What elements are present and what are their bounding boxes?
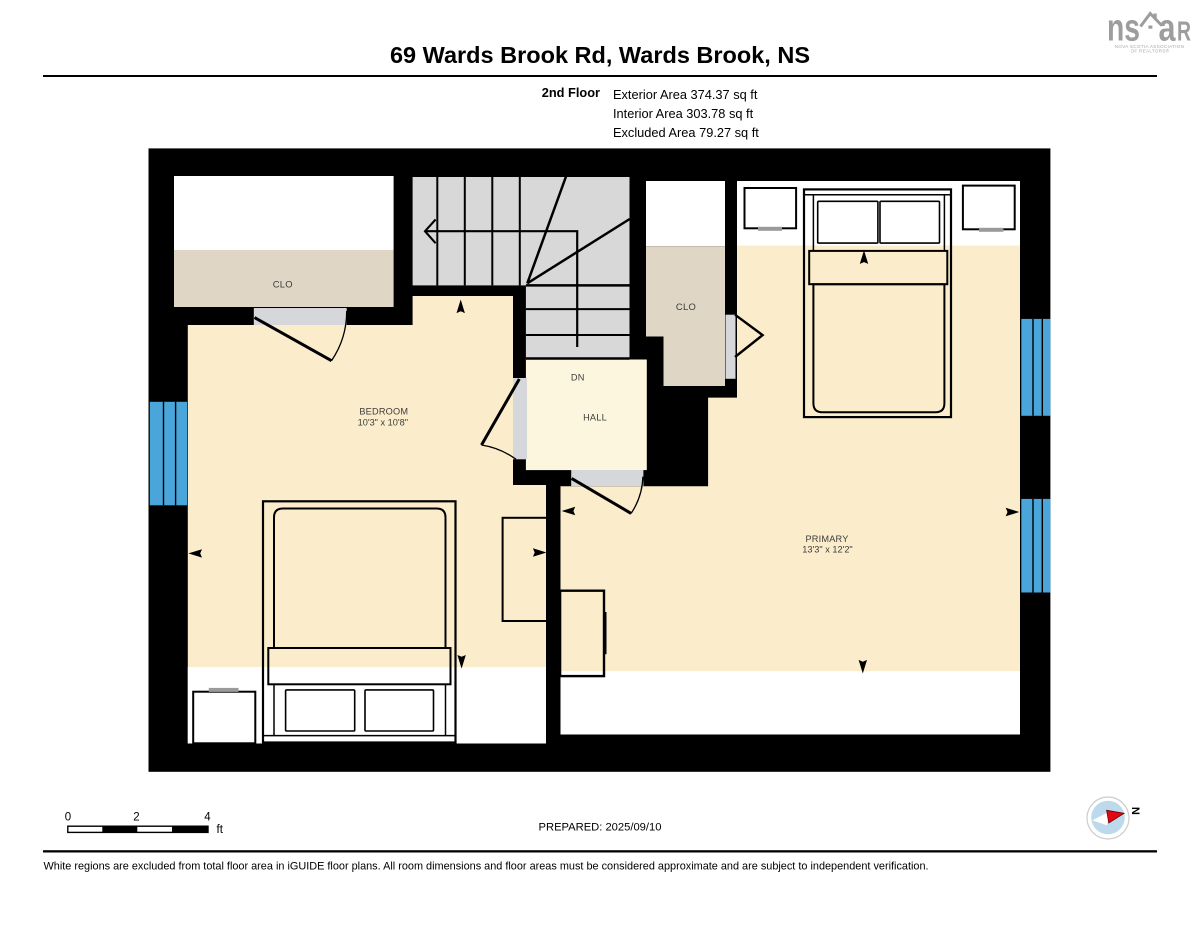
svg-text:PRIMARY: PRIMARY xyxy=(805,534,848,544)
svg-text:PREPARED: 2025/09/10: PREPARED: 2025/09/10 xyxy=(539,822,662,834)
svg-text:White regions are excluded fro: White regions are excluded from total fl… xyxy=(44,861,929,873)
svg-text:ft: ft xyxy=(217,824,224,836)
svg-text:4: 4 xyxy=(204,812,211,824)
svg-text:0: 0 xyxy=(65,812,71,824)
svg-text:HALL: HALL xyxy=(583,412,607,422)
svg-text:13'3" x 12'2": 13'3" x 12'2" xyxy=(802,545,852,555)
svg-text:CLO: CLO xyxy=(273,278,293,289)
svg-text:CLO: CLO xyxy=(676,301,696,312)
svg-text:10'3" x 10'8": 10'3" x 10'8" xyxy=(358,417,408,427)
svg-text:DN: DN xyxy=(571,372,585,382)
svg-text:N: N xyxy=(1129,807,1141,815)
svg-text:2: 2 xyxy=(133,812,139,824)
svg-text:BEDROOM: BEDROOM xyxy=(359,406,408,416)
